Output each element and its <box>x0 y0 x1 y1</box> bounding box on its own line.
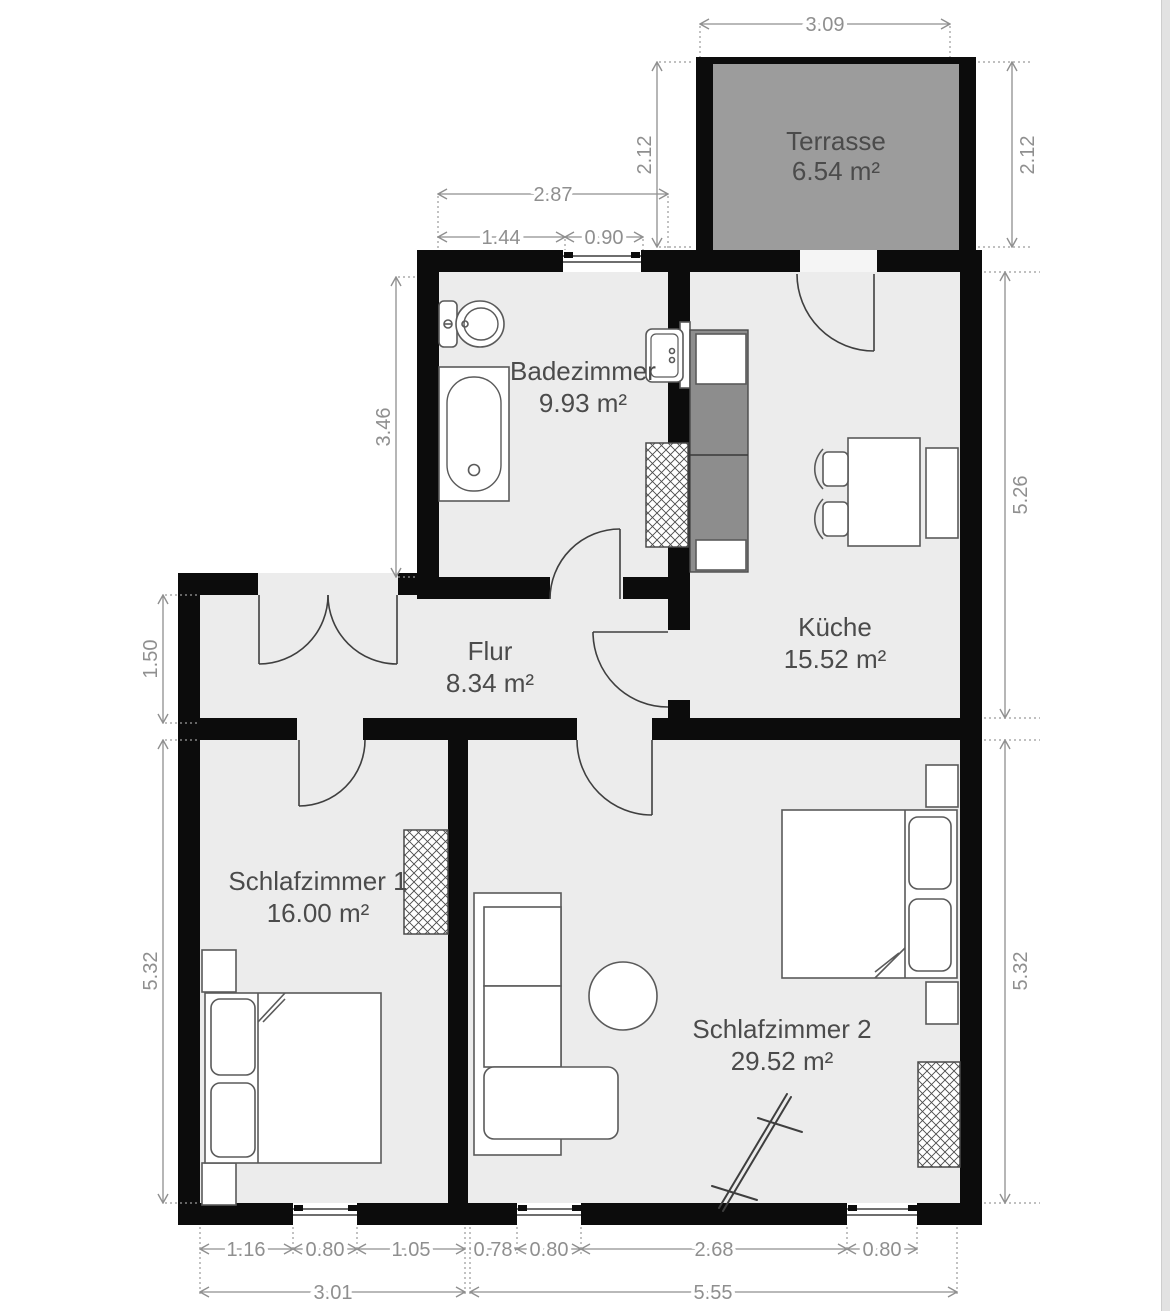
window-bedroom1 <box>293 1203 357 1225</box>
label-terrasse: Terrasse <box>786 126 886 156</box>
bathroom-wall-left <box>417 250 439 595</box>
kitchen-sideboard <box>926 448 958 538</box>
label-kueche: Küche <box>798 612 872 642</box>
dim-terrace-height-right: 2.12 <box>1017 136 1039 175</box>
stove-icon <box>696 540 746 570</box>
outer-wall-left <box>178 573 200 1225</box>
side-table-round <box>589 962 657 1030</box>
window-bathroom <box>563 250 641 272</box>
label-badezimmer: Badezimmer <box>510 356 656 386</box>
sofa-cushion <box>484 907 561 986</box>
pillow <box>211 1083 255 1157</box>
kitchen-sink-icon <box>696 334 746 384</box>
dim-bath-window: 0.90 <box>585 227 624 249</box>
bed-double <box>782 810 957 978</box>
nightstand <box>202 950 236 992</box>
kitchen-table <box>848 438 920 546</box>
dim-bottom-b1-window: 0.80 <box>306 1239 345 1261</box>
pillow <box>211 999 255 1075</box>
pillow <box>909 899 951 971</box>
pillow <box>909 817 951 889</box>
dim-bath-top-total: 2.87 <box>534 184 573 206</box>
dim-bottom-b1-right: 1.05 <box>392 1239 431 1261</box>
label-schlafzimmer2-area: 29.52 m² <box>731 1046 834 1076</box>
hallway-floor <box>200 595 668 718</box>
nightstand <box>926 982 958 1024</box>
label-kueche-area: 15.52 m² <box>784 644 887 674</box>
label-schlafzimmer1: Schlafzimmer 1 <box>228 866 407 896</box>
terrace-wall-right <box>959 57 976 250</box>
dim-bedroom1-height: 5.32 <box>140 952 162 991</box>
dim-flur-height: 1.50 <box>140 640 162 679</box>
dim-bedroom2-height: 5.32 <box>1010 952 1032 991</box>
window-bedroom2-left <box>517 1203 581 1225</box>
label-schlafzimmer1-area: 16.00 m² <box>267 898 370 928</box>
bedroom1-radiator-icon <box>404 830 448 934</box>
bedroom2-radiator-icon <box>918 1062 960 1167</box>
bathroom-radiator-icon <box>646 443 688 547</box>
dim-bottom-b2-left: 0.78 <box>474 1239 513 1261</box>
floor-plan-page: 3.09 2.12 2.12 2.87 1.44 0.90 3.46 5.26 … <box>0 0 1170 1311</box>
nightstand <box>202 1163 236 1205</box>
toilet-icon <box>439 301 504 347</box>
terrace-wall-left <box>696 57 713 250</box>
label-flur-area: 8.34 m² <box>446 668 534 698</box>
label-flur: Flur <box>468 636 513 666</box>
dim-bottom-b1-left: 1.16 <box>227 1239 266 1261</box>
dim-kitchen-height: 5.26 <box>1010 476 1032 515</box>
bathtub-icon <box>439 367 509 501</box>
sofa-cushion <box>484 986 561 1067</box>
bed-double <box>205 993 381 1163</box>
page-edge-strip <box>1161 0 1170 1311</box>
dim-bottom-b2-window1: 0.80 <box>530 1239 569 1261</box>
label-schlafzimmer2: Schlafzimmer 2 <box>692 1014 871 1044</box>
dim-terrace-width: 3.09 <box>806 14 845 36</box>
terrace-wall-top <box>696 57 976 64</box>
floor-plan: 3.09 2.12 2.12 2.87 1.44 0.90 3.46 5.26 … <box>0 0 1170 1311</box>
dim-bath-top-left: 1.44 <box>482 227 521 249</box>
dim-bottom-b2-mid: 2.68 <box>695 1239 734 1261</box>
dim-bottom-b2-window2: 0.80 <box>863 1239 902 1261</box>
window-bedroom2-right <box>847 1203 917 1225</box>
dim-bottom-total-left: 3.01 <box>314 1282 353 1304</box>
label-terrasse-area: 6.54 m² <box>792 156 880 186</box>
dim-terrace-height-left: 2.12 <box>634 136 656 175</box>
dim-bottom-total-right: 5.55 <box>694 1282 733 1304</box>
bedroom-divider-wall <box>448 740 468 1203</box>
sofa-chaise <box>484 1067 618 1139</box>
dim-bath-height: 3.46 <box>373 408 395 447</box>
nightstand <box>926 765 958 807</box>
label-badezimmer-area: 9.93 m² <box>539 388 627 418</box>
